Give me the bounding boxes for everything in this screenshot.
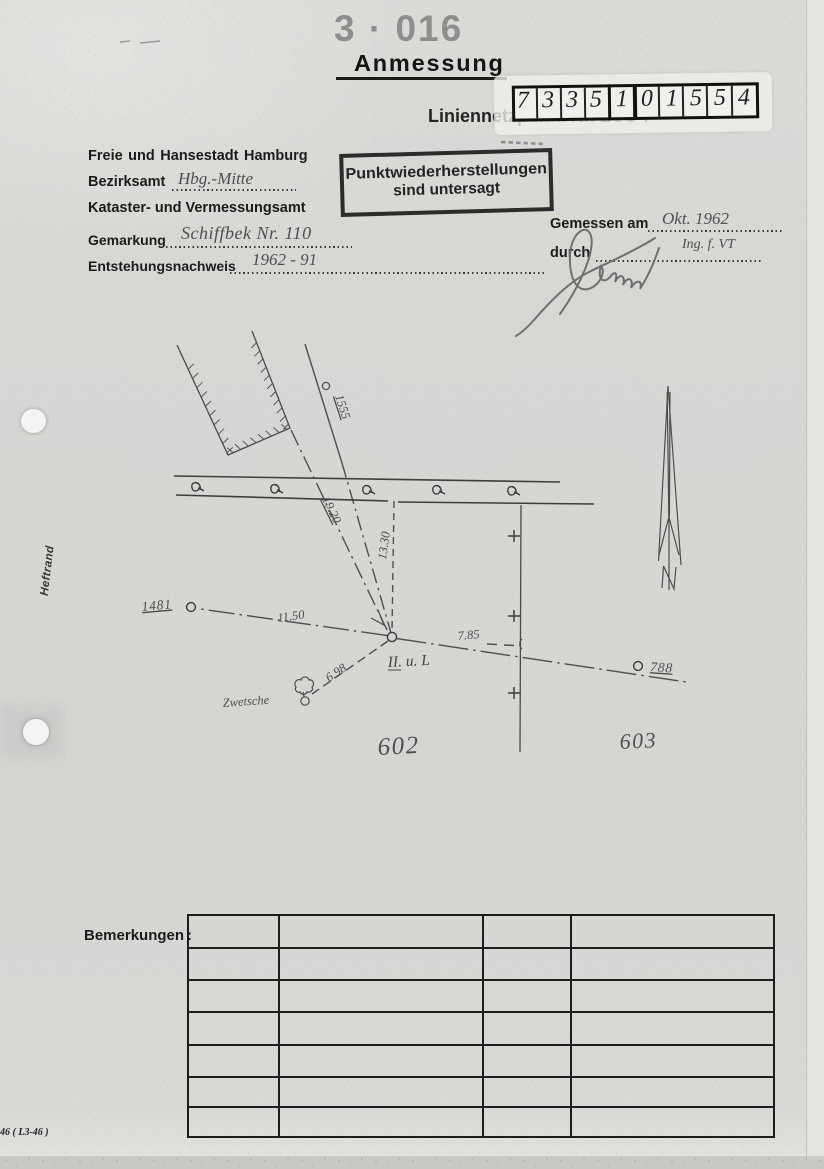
svg-text:6.98: 6.98: [323, 660, 350, 684]
svg-text:788: 788: [650, 659, 674, 676]
svg-text:603: 603: [619, 727, 658, 754]
svg-text:II. u. L: II. u. L: [386, 652, 430, 671]
svg-text:13.30: 13.30: [375, 530, 393, 561]
svg-text:602: 602: [377, 732, 420, 761]
svg-text:1555: 1555: [332, 393, 353, 421]
svg-text:Zwetsche: Zwetsche: [222, 693, 270, 710]
svg-text:1481: 1481: [141, 596, 172, 614]
svg-text:11.50: 11.50: [276, 607, 306, 625]
svg-text:7.85: 7.85: [457, 627, 480, 643]
